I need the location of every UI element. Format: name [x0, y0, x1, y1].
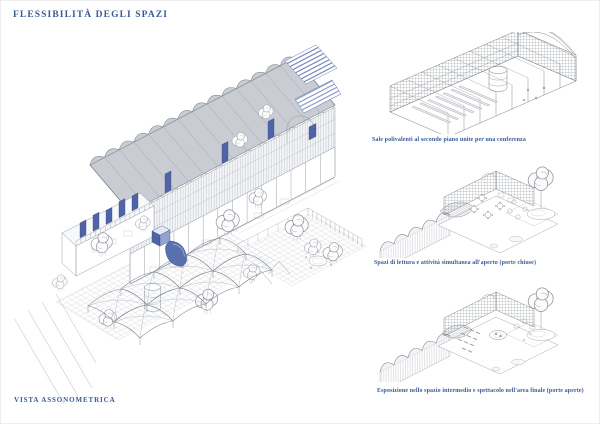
caption-courtyard-closed: Spazi di lettura e attività simultanea a…: [374, 260, 599, 267]
figure-conference-hall: [378, 32, 592, 134]
performance-stage: [490, 331, 507, 340]
hall-structure: [390, 32, 576, 134]
courtyard-floor: [438, 317, 558, 374]
vault-roofs: [380, 334, 450, 382]
caption-conference: Sale polivalenti al secondo piano unite …: [372, 137, 597, 144]
figure-courtyard-closed: [378, 151, 592, 258]
vault-roofs: [380, 213, 450, 258]
page-title: FLESSIBILITÀ DEGLI SPAZI: [13, 10, 168, 20]
main-axonometric-figure: [6, 26, 378, 410]
main-figure-label: VISTA ASSONOMETRICA: [14, 396, 116, 404]
figure-courtyard-open: [378, 270, 592, 382]
presentation-board: FLESSIBILITÀ DEGLI SPAZI: [0, 0, 600, 424]
caption-courtyard-open: Esposizione nello spazio intermedio e sp…: [377, 388, 600, 395]
